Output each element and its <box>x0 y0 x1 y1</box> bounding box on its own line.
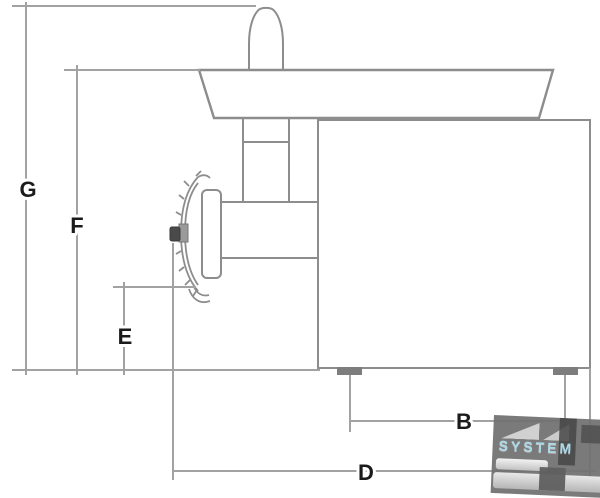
dimension-label-f: F <box>70 213 83 238</box>
dimension-label-b: B <box>456 409 472 434</box>
dimension-G-line <box>12 2 256 375</box>
foot-left <box>337 367 362 375</box>
clamp-knob <box>170 224 188 242</box>
motor-body <box>318 120 590 368</box>
watermark-notch <box>539 467 566 491</box>
feed-neck <box>243 118 289 202</box>
head-front-plate <box>202 190 221 278</box>
diagram-canvas: G F E B D SYSTEM <box>0 0 600 498</box>
watermark-logo: SYSTEM <box>491 415 600 498</box>
machine-outline <box>170 8 590 375</box>
dimension-label-d: D <box>358 460 374 485</box>
dimension-label-e: E <box>118 324 133 349</box>
pusher-handle <box>249 8 283 70</box>
dimension-label-g: G <box>19 177 36 202</box>
foot-right <box>553 367 578 375</box>
grinder-barrel <box>218 202 318 258</box>
feeding-tray <box>199 70 553 118</box>
watermark-text: SYSTEM <box>498 437 600 458</box>
